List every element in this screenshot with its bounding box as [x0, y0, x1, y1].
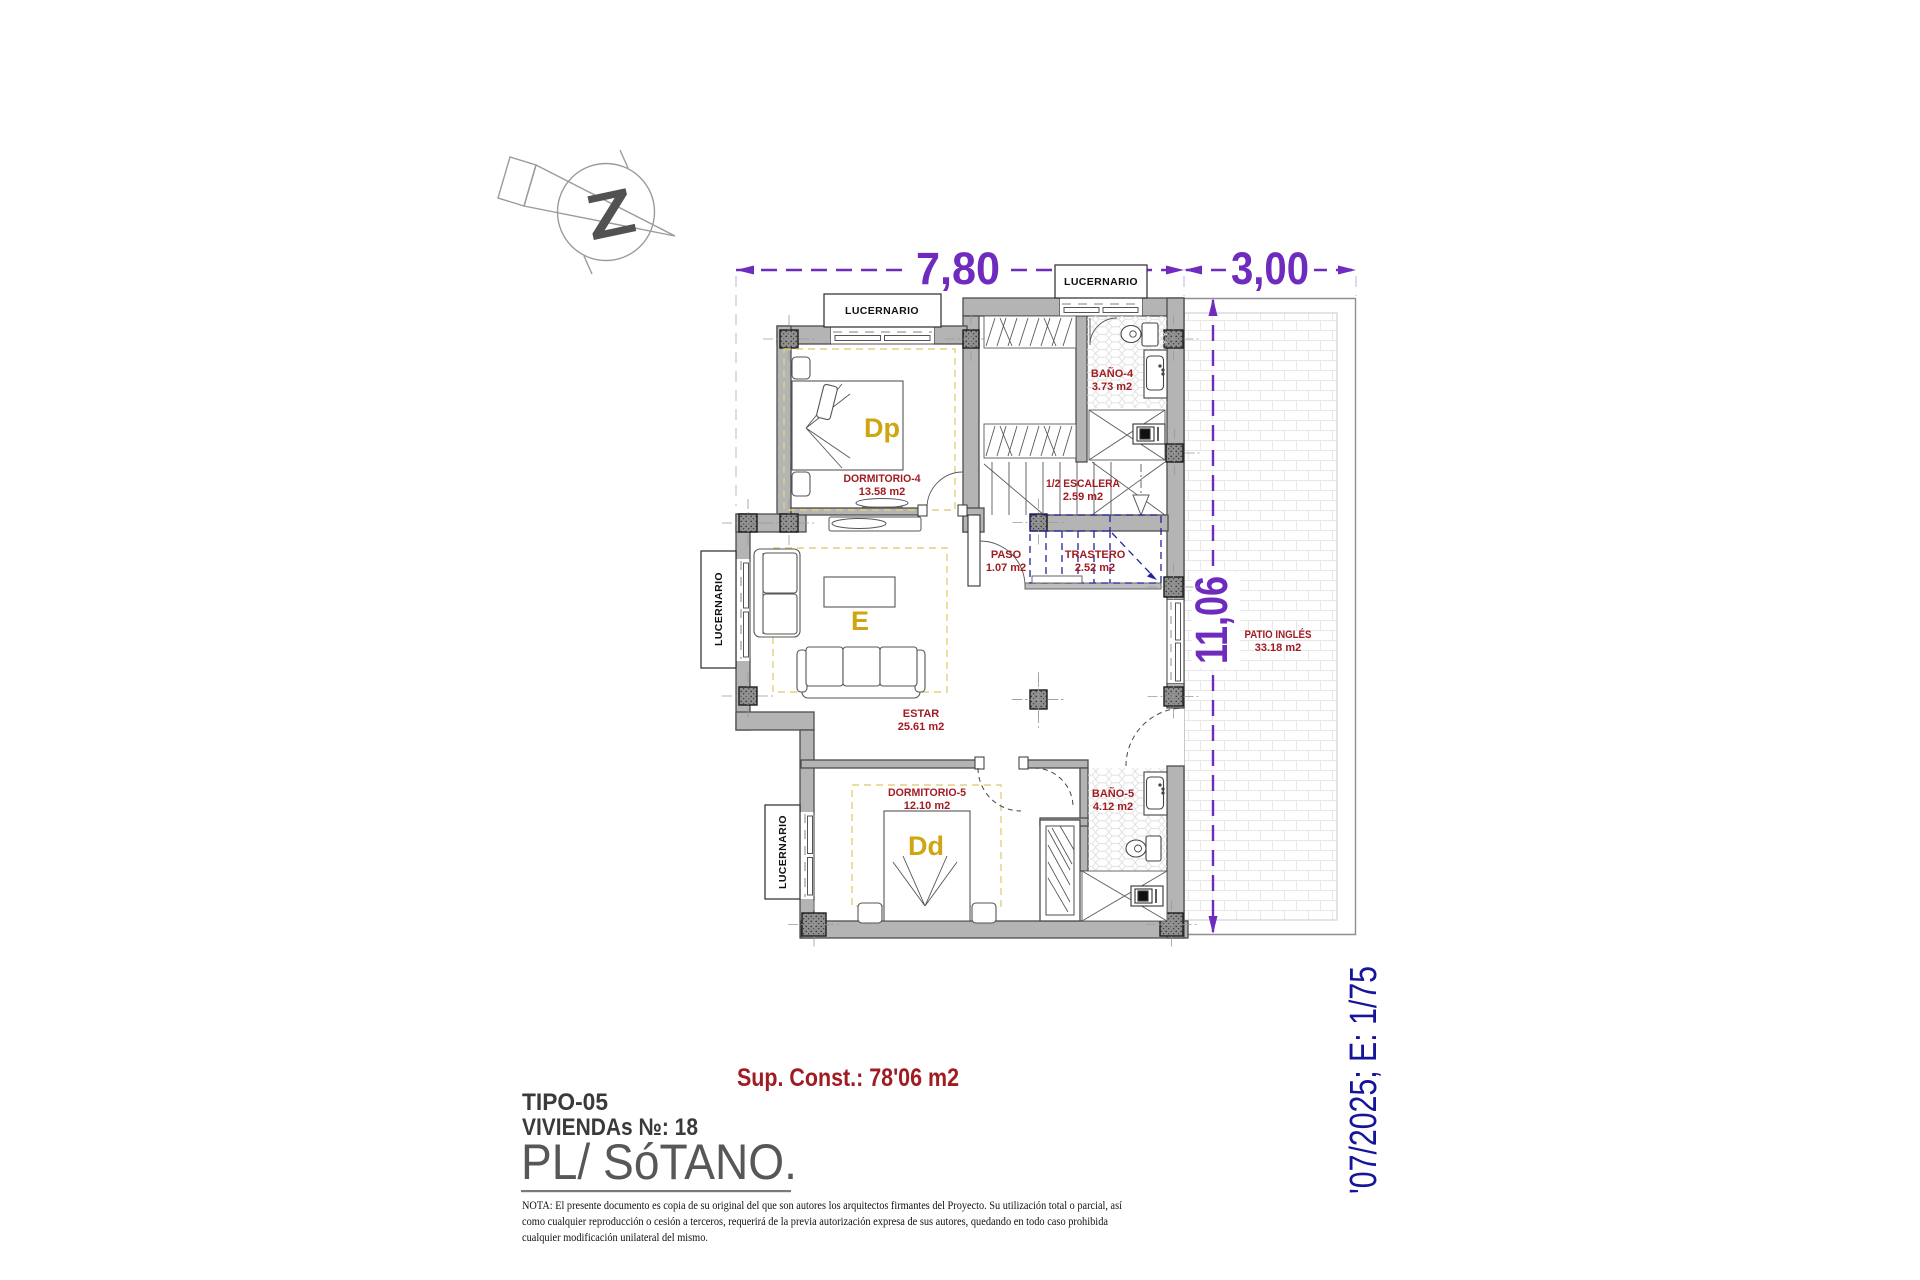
svg-text:como cualquier reproducción o: como cualquier reproducción o cesión a t… [522, 1216, 1108, 1228]
svg-text:4.12 m2: 4.12 m2 [1093, 801, 1133, 813]
svg-text:DORMITORIO-4: DORMITORIO-4 [844, 473, 922, 485]
svg-text:Sup. Const.: 78'06 m2: Sup. Const.: 78'06 m2 [737, 1064, 959, 1092]
svg-text:3.73 m2: 3.73 m2 [1092, 381, 1132, 393]
svg-text:TRASTERO: TRASTERO [1065, 549, 1126, 561]
svg-text:2.59 m2: 2.59 m2 [1063, 491, 1103, 503]
svg-text:cualquier modificación unilate: cualquier modificación unilateral del mi… [522, 1232, 708, 1244]
svg-text:Dp: Dp [864, 413, 900, 443]
svg-text:PATIO INGLÉS: PATIO INGLÉS [1245, 628, 1312, 641]
svg-text:3,00: 3,00 [1231, 243, 1309, 294]
svg-text:BAÑO-5: BAÑO-5 [1092, 787, 1134, 800]
svg-text:1/2 ESCALERA: 1/2 ESCALERA [1046, 478, 1120, 490]
svg-text:LUCERNARIO: LUCERNARIO [713, 572, 725, 646]
svg-text:PL/ SóTANO.: PL/ SóTANO. [521, 1134, 797, 1190]
svg-text:2.52 m2: 2.52 m2 [1075, 562, 1115, 574]
svg-text:TIPO-05: TIPO-05 [522, 1089, 608, 1116]
svg-text:E: E [851, 606, 869, 636]
svg-text:13.58 m2: 13.58 m2 [859, 486, 905, 498]
svg-text:LUCERNARIO: LUCERNARIO [777, 815, 789, 889]
svg-text:33.18 m2: 33.18 m2 [1255, 642, 1301, 654]
svg-text:25.61 m2: 25.61 m2 [898, 721, 944, 733]
svg-text:NOTA: El presente documento es: NOTA: El presente documento es copia de … [522, 1200, 1123, 1212]
svg-text:Dd: Dd [908, 831, 944, 861]
svg-text:DORMITORIO-5: DORMITORIO-5 [888, 787, 966, 799]
svg-text:PASO: PASO [991, 549, 1022, 561]
svg-text:11,06: 11,06 [1186, 576, 1237, 664]
svg-text:7,80: 7,80 [916, 243, 1000, 294]
svg-text:12.10 m2: 12.10 m2 [904, 800, 950, 812]
svg-text:LUCERNARIO: LUCERNARIO [845, 305, 919, 317]
svg-text:1.07 m2: 1.07 m2 [986, 562, 1026, 574]
svg-text:LUCERNARIO: LUCERNARIO [1064, 276, 1138, 288]
svg-text:'07/2025; E: 1/75: '07/2025; E: 1/75 [1343, 966, 1385, 1194]
svg-text:BAÑO-4: BAÑO-4 [1091, 367, 1134, 380]
svg-text:ESTAR: ESTAR [903, 708, 940, 720]
